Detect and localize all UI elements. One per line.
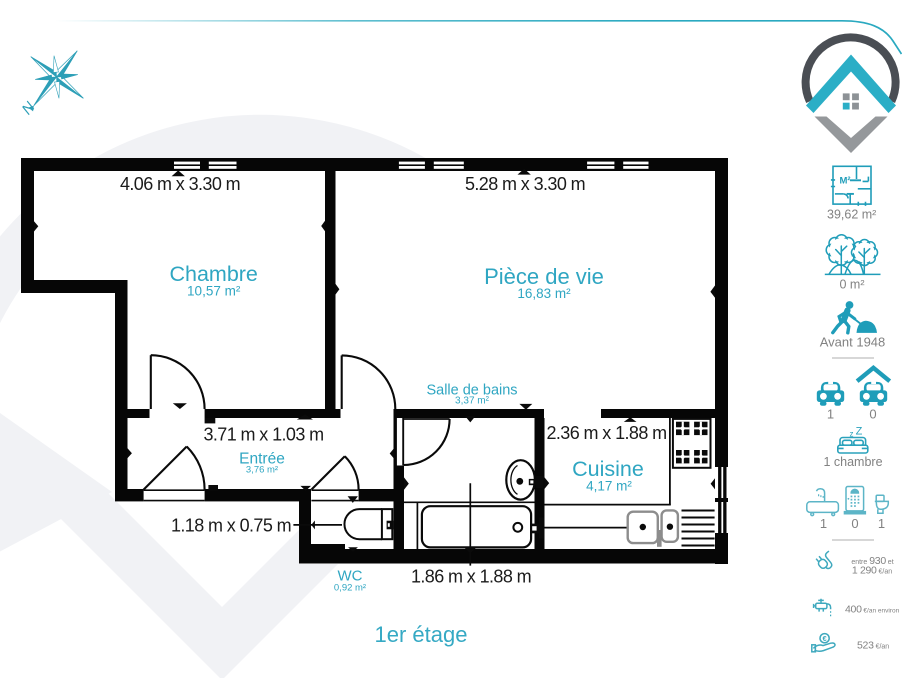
svg-text:1: 1 — [827, 407, 834, 422]
svg-text:39,62 m²: 39,62 m² — [827, 208, 876, 222]
svg-text:3,37 m²: 3,37 m² — [455, 396, 490, 407]
svg-text:M²: M² — [839, 175, 850, 186]
svg-text:523 €/an: 523 €/an — [857, 640, 889, 652]
svg-text:0: 0 — [869, 407, 876, 422]
svg-text:3.71 m x 1.03 m: 3.71 m x 1.03 m — [203, 425, 323, 445]
svg-text:Avant 1948: Avant 1948 — [820, 335, 886, 350]
svg-text:Z: Z — [856, 426, 863, 438]
svg-text:16,83 m²: 16,83 m² — [517, 286, 571, 301]
svg-text:1.18 m x 0.75 m: 1.18 m x 0.75 m — [171, 516, 291, 536]
svg-text:N: N — [19, 99, 39, 118]
svg-text:1.86 m x 1.88 m: 1.86 m x 1.88 m — [411, 567, 531, 587]
svg-text:1: 1 — [878, 516, 885, 531]
svg-text:1 chambre: 1 chambre — [823, 455, 882, 469]
svg-text:10,57 m²: 10,57 m² — [187, 284, 241, 299]
svg-text:Cuisine: Cuisine — [572, 457, 644, 481]
svg-text:Chambre: Chambre — [169, 262, 257, 286]
svg-text:4.06 m x 3.30 m: 4.06 m x 3.30 m — [120, 174, 240, 194]
svg-text:5.28 m x 3.30 m: 5.28 m x 3.30 m — [465, 174, 585, 194]
svg-text:1 290 €/an: 1 290 €/an — [852, 564, 892, 576]
svg-text:4,17 m²: 4,17 m² — [586, 479, 632, 494]
svg-text:400 €/an environ: 400 €/an environ — [845, 604, 900, 616]
svg-text:z: z — [850, 430, 854, 439]
svg-text:1: 1 — [820, 516, 827, 531]
svg-text:2.36 m x 1.88 m: 2.36 m x 1.88 m — [546, 423, 666, 443]
svg-text:3,76 m²: 3,76 m² — [246, 465, 278, 476]
svg-text:0: 0 — [851, 516, 858, 531]
svg-text:0,92 m²: 0,92 m² — [334, 583, 366, 594]
svg-text:1er étage: 1er étage — [375, 622, 468, 647]
svg-text:0 m²: 0 m² — [840, 278, 865, 292]
